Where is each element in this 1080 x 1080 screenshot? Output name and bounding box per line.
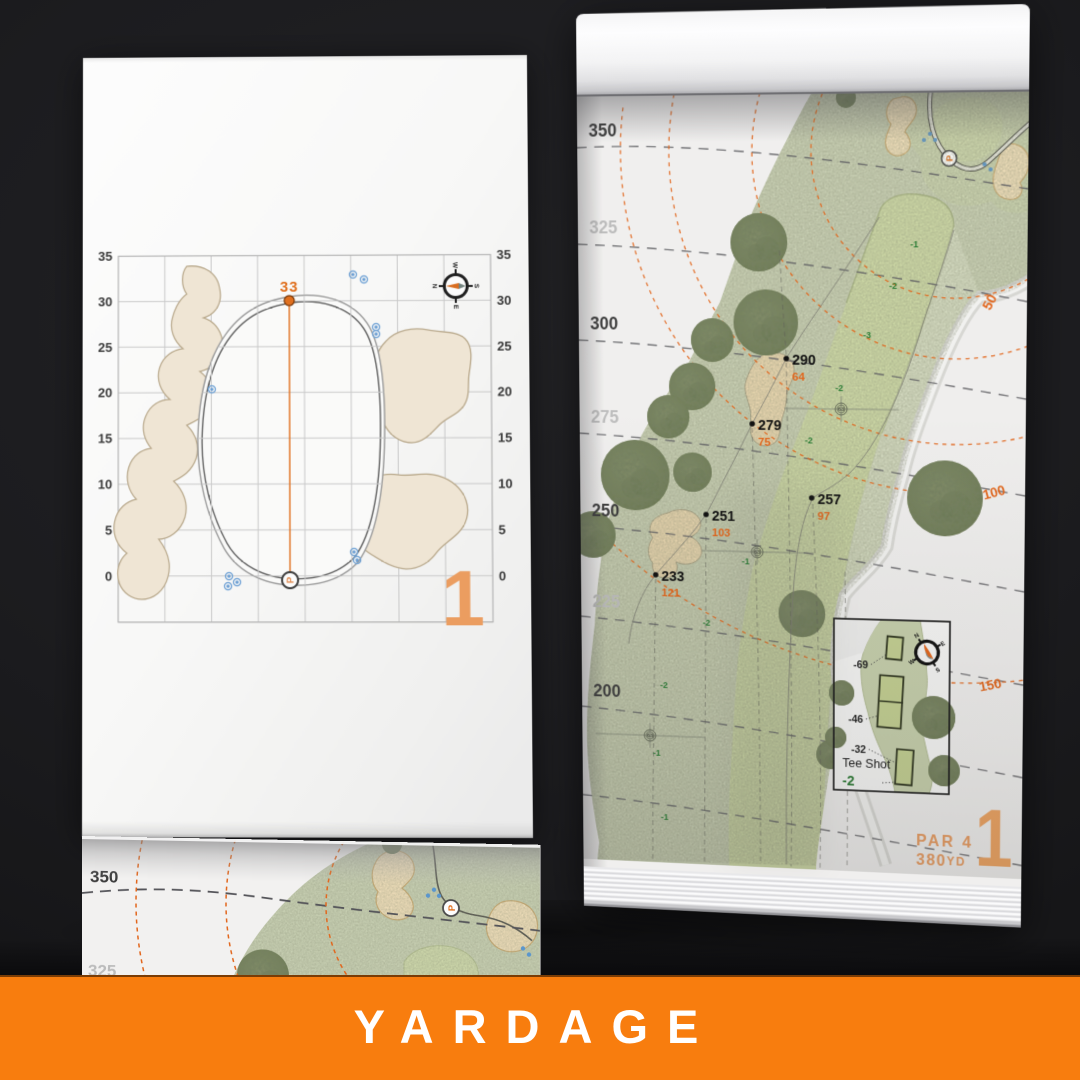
svg-text:64: 64 (792, 371, 805, 383)
svg-text:0: 0 (105, 568, 112, 583)
svg-text:-2: -2 (835, 383, 843, 393)
svg-text:5: 5 (105, 522, 112, 537)
svg-text:35: 35 (496, 247, 511, 262)
svg-text:N: N (431, 284, 438, 289)
svg-text:5: 5 (498, 522, 505, 537)
svg-text:25: 25 (98, 340, 112, 355)
svg-text:10: 10 (498, 476, 513, 491)
svg-text:-1: -1 (910, 239, 918, 249)
svg-text:35: 35 (98, 249, 112, 264)
svg-text:S: S (472, 284, 479, 288)
svg-text:10: 10 (98, 477, 112, 492)
svg-text:25: 25 (497, 338, 512, 353)
svg-text:20: 20 (497, 384, 512, 399)
svg-text:E: E (452, 305, 459, 309)
svg-text:30: 30 (497, 292, 512, 307)
svg-text:20: 20 (98, 385, 112, 400)
svg-text:-2: -2 (889, 281, 897, 291)
svg-text:290: 290 (792, 352, 816, 368)
svg-text:30: 30 (98, 294, 112, 309)
svg-text:33: 33 (280, 280, 299, 296)
svg-text:0: 0 (499, 568, 506, 583)
svg-text:P: P (447, 904, 458, 911)
svg-text:-3: -3 (863, 330, 871, 340)
svg-text:1: 1 (441, 556, 485, 643)
svg-text:63: 63 (838, 407, 844, 413)
svg-text:15: 15 (98, 431, 112, 446)
svg-text:P: P (285, 576, 296, 583)
svg-text:W: W (451, 262, 458, 269)
svg-text:15: 15 (498, 430, 513, 445)
